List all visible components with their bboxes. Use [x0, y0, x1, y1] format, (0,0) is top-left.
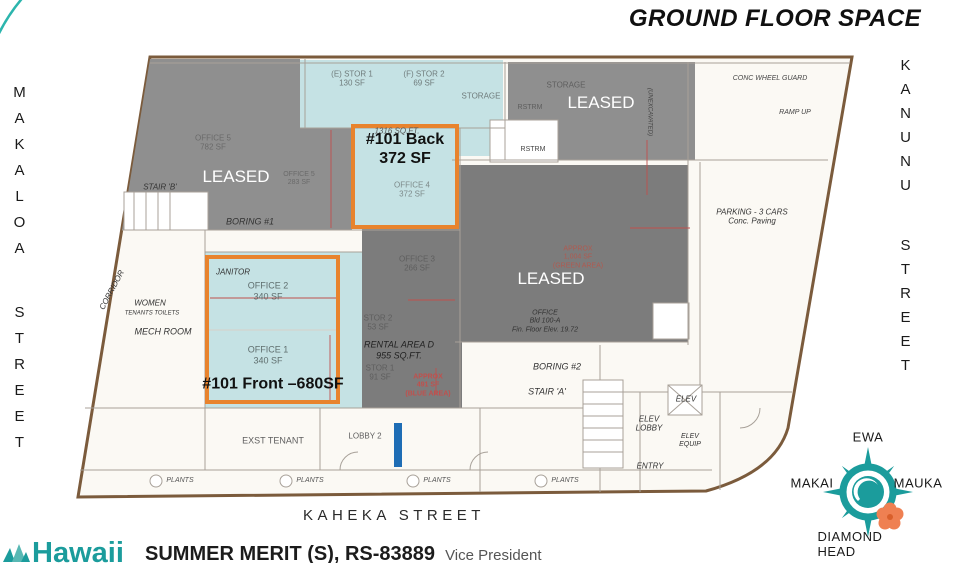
- plan-label-unit-back: #101 Back 372 SF: [366, 131, 444, 169]
- leased-region-center-left: [362, 228, 462, 408]
- plan-label-storage-gray: STORAGE: [547, 80, 586, 89]
- plan-label-office-4: OFFICE 4 372 SF: [394, 181, 430, 200]
- small-office-room: [653, 303, 689, 339]
- street-label-makaloa: MAKALOA STREET: [11, 84, 28, 460]
- blue-door-marker: [394, 423, 402, 467]
- highlight-region-front: [205, 252, 362, 408]
- plan-label-wheel-guard: CONC WHEEL GUARD: [733, 75, 808, 83]
- plan-label-janitor: JANITOR: [216, 267, 250, 276]
- plan-label-approx-blue: APPROX 491 SF (BLUE AREA): [405, 374, 450, 399]
- compass-label-mauka: MAUKA: [894, 476, 943, 491]
- compass-label-ewa: EWA: [853, 430, 884, 445]
- compass-label-makai: MAKAI: [791, 476, 834, 491]
- plan-label-leased-topright: LEASED: [567, 93, 634, 113]
- plan-label-mech-room: MECH ROOM: [135, 327, 192, 338]
- plan-label-tenants-toilets: TENANTS TOILETS: [125, 310, 180, 317]
- plan-label-stor-2: STOR 2 53 SF: [364, 314, 393, 333]
- unit-front-box: [207, 257, 338, 402]
- plan-label-office-2: OFFICE 2 340 SF: [248, 280, 289, 301]
- plan-label-office-100a: OFFICE Bld 100-A Fin. Floor Elev. 19.72: [512, 310, 578, 335]
- compass-label-diamond-head: DIAMOND HEAD: [818, 529, 911, 559]
- plan-label-plants-4: PLANTS: [551, 477, 578, 485]
- plan-label-approx-green: APPROX 1,004 SF (GREEN AREA): [553, 246, 603, 271]
- plan-label-exst-tenant: EXST TENANT: [242, 436, 304, 447]
- plan-label-leased-center: LEASED: [517, 269, 584, 289]
- plan-boundary: [78, 57, 852, 497]
- plant-symbols: [150, 475, 547, 487]
- plan-label-office-3: OFFICE 3 266 SF: [399, 255, 435, 274]
- plan-label-elev-equip: ELEV EQUIP: [679, 433, 701, 450]
- plan-label-stor-1: STOR 1 91 SF: [366, 364, 395, 383]
- street-label-kaheka: KAHEKA STREET: [303, 507, 485, 524]
- dimension-lines: [210, 130, 690, 400]
- plan-label-stor-f2: (F) STOR 2 69 SF: [403, 70, 444, 89]
- leased-region-topright: [508, 62, 695, 160]
- rstrm-room: [490, 120, 558, 162]
- elevator-symbol: [668, 385, 702, 415]
- agent-line: SUMMER MERIT (S), RS-83889Vice President: [145, 543, 542, 563]
- plan-label-rstrm-lower: RSTRM: [521, 146, 546, 154]
- plan-label-unexcavated: (UNEXCAVATED): [645, 88, 652, 136]
- unit-back-box: [353, 126, 457, 227]
- leased-region-topleft: [122, 59, 352, 230]
- plan-label-office-1: OFFICE 1 340 SF: [248, 344, 289, 365]
- plan-label-stair-b: STAIR 'B': [143, 182, 177, 191]
- plan-label-ramp-up: RAMP UP: [779, 109, 811, 117]
- plan-label-stair-a: STAIR 'A': [528, 387, 566, 398]
- plan-label-elev: ELEV: [676, 394, 696, 403]
- highlight-region-back: [353, 126, 457, 227]
- plan-label-entry: ENTRY: [637, 461, 664, 470]
- flyer-page: (E) STOR 1 130 SF(F) STOR 2 69 SFSTORAGE…: [0, 0, 957, 563]
- plan-label-elev-lobby: ELEV LOBBY: [636, 415, 663, 434]
- plan-label-office-5a: OFFICE 5 782 SF: [195, 134, 231, 153]
- agent-title: Vice President: [445, 547, 541, 563]
- highlight-region-top: [300, 60, 503, 156]
- swoosh-decoration: [0, 0, 60, 70]
- stair-b-room: [124, 192, 208, 230]
- plan-label-stor-e1: (E) STOR 1 130 SF: [331, 70, 373, 89]
- plan-label-women: WOMEN: [134, 298, 166, 307]
- street-label-kanunu: KANUNU STREET: [897, 57, 914, 381]
- brand-name: Hawaii: [32, 537, 124, 563]
- plan-label-plants-1: PLANTS: [166, 477, 193, 485]
- brand-icon: [2, 544, 30, 563]
- agent-name: SUMMER MERIT (S), RS-83889: [145, 543, 435, 563]
- plan-label-office-5b: OFFICE 5 283 SF: [283, 171, 315, 188]
- plan-label-leased-topleft: LEASED: [202, 167, 269, 187]
- stair-a-symbol: [583, 380, 623, 468]
- plan-label-rental-area-d: RENTAL AREA D 955 SQ.FT.: [364, 339, 434, 360]
- plan-label-parking: PARKING - 3 CARS Conc. Paving: [716, 208, 787, 227]
- plan-label-boring-1: BORING #1: [226, 217, 274, 228]
- plan-label-unit-front: #101 Front –680SF: [202, 376, 343, 395]
- plan-label-storage-teal: STORAGE: [462, 91, 501, 100]
- plan-label-boring-2: BORING #2: [533, 362, 581, 373]
- page-title: GROUND FLOOR SPACE: [629, 5, 921, 33]
- stair-b-symbol: [134, 192, 170, 230]
- leased-region-center: [455, 165, 688, 342]
- plan-label-rstrm-upper: RSTRM: [518, 104, 543, 112]
- plan-label-corridor: CORRIDOR: [98, 269, 127, 312]
- plan-label-plants-2: PLANTS: [296, 477, 323, 485]
- plan-label-sqft-1316: 1316 SQ.FT.: [374, 126, 419, 135]
- plan-label-lobby-2: LOBBY 2: [348, 431, 381, 440]
- plan-label-plants-3: PLANTS: [423, 477, 450, 485]
